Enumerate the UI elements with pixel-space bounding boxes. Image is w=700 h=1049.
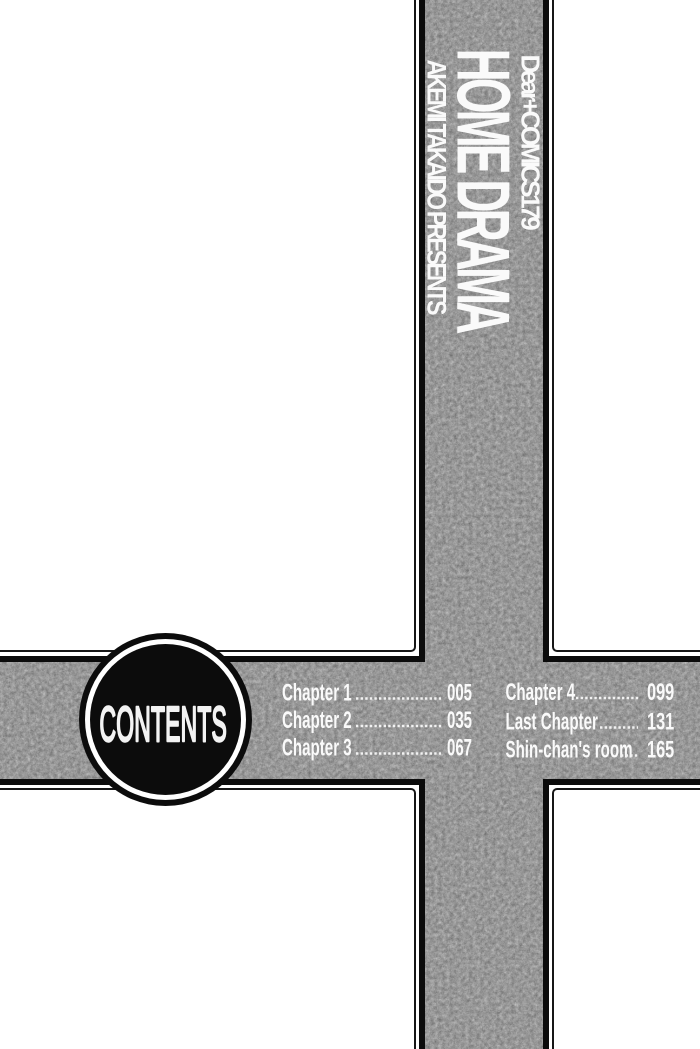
svg-text:Dear+COMICS179: Dear+COMICS179	[516, 55, 546, 231]
svg-text:067: 067	[447, 735, 472, 761]
svg-text:005: 005	[447, 680, 472, 706]
svg-text:165: 165	[647, 736, 674, 763]
svg-text:Shin-chan's room: Shin-chan's room	[506, 737, 633, 763]
svg-text:Chapter 4: Chapter 4	[506, 680, 576, 706]
svg-text:Chapter 1: Chapter 1	[282, 680, 352, 706]
svg-text:Chapter 2: Chapter 2	[282, 708, 352, 734]
svg-text:CONTENTS: CONTENTS	[100, 697, 227, 752]
svg-text:131: 131	[647, 708, 674, 735]
svg-text:Last Chapter: Last Chapter	[506, 709, 599, 735]
svg-text:HOME DRAMA: HOME DRAMA	[441, 49, 524, 334]
svg-text:AKEMI TAKAIDO PRESENTS: AKEMI TAKAIDO PRESENTS	[421, 60, 451, 315]
svg-text:099: 099	[647, 679, 674, 706]
svg-text:035: 035	[447, 708, 472, 734]
svg-text:Chapter 3: Chapter 3	[282, 735, 352, 761]
